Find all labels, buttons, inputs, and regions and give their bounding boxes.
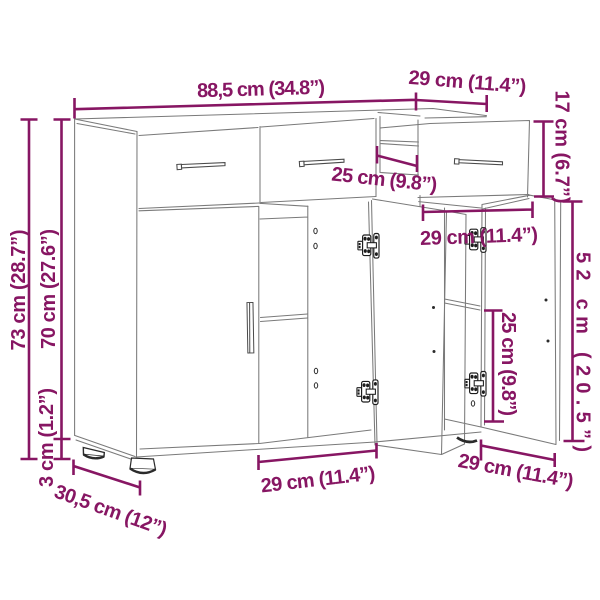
svg-text:17 cm (6.7”): 17 cm (6.7”) xyxy=(551,91,573,204)
svg-text:88,5 cm (34.8”): 88,5 cm (34.8”) xyxy=(197,77,326,103)
svg-text:3 cm (1.2”): 3 cm (1.2”) xyxy=(36,388,58,487)
svg-text:29 cm (11.4”): 29 cm (11.4”) xyxy=(420,224,539,250)
svg-text:73 cm (28.7”): 73 cm (28.7”) xyxy=(8,230,30,351)
svg-text:70 cm (27.6”): 70 cm (27.6”) xyxy=(38,229,60,349)
svg-text:25 cm (9.8”): 25 cm (9.8”) xyxy=(497,312,519,416)
